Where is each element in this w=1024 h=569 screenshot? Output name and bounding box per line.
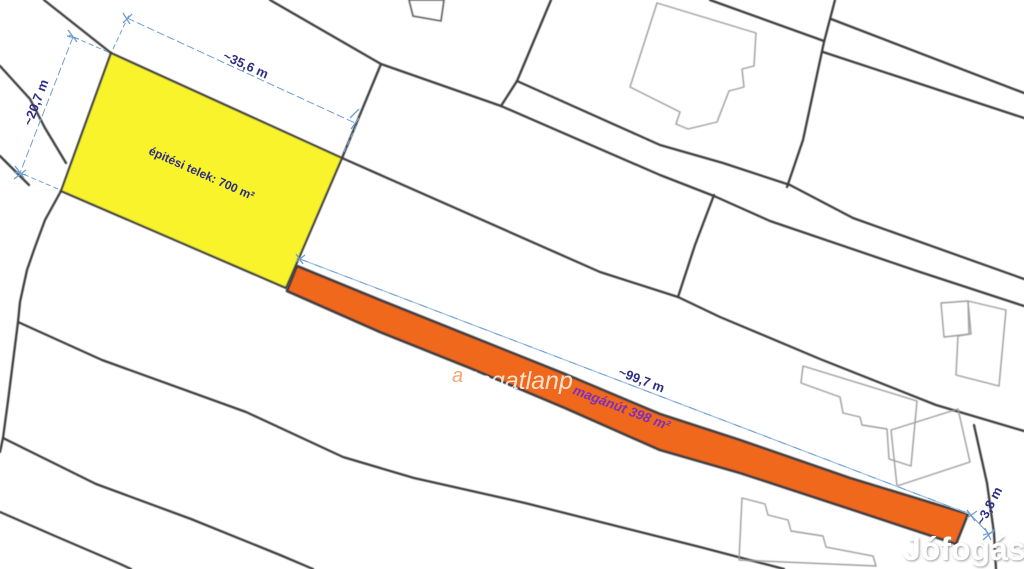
svg-text:Jófogás: Jófogás [903,531,1024,567]
svg-text:a: a [452,365,463,387]
svg-text:Ingatlanp: Ingatlanp [470,367,573,395]
